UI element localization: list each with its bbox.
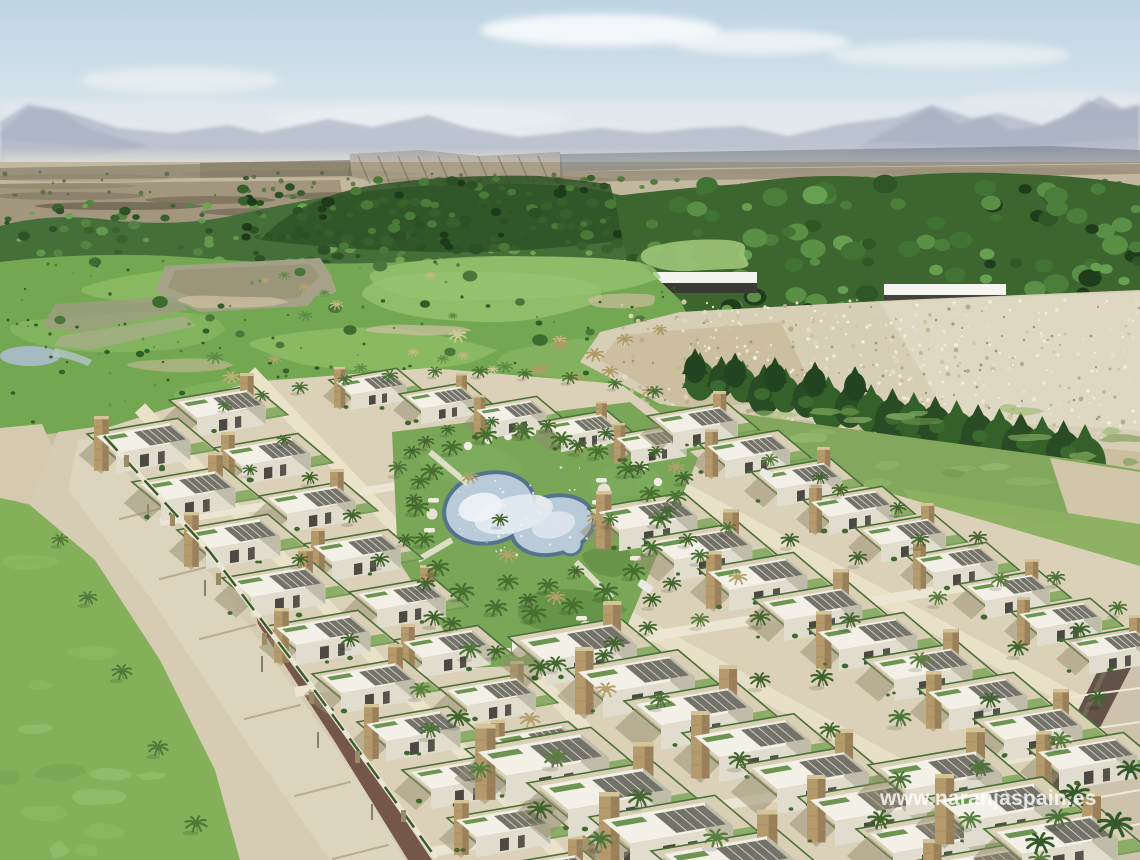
svg-text:www.naranjaspain.es: www.naranjaspain.es: [879, 787, 1097, 810]
